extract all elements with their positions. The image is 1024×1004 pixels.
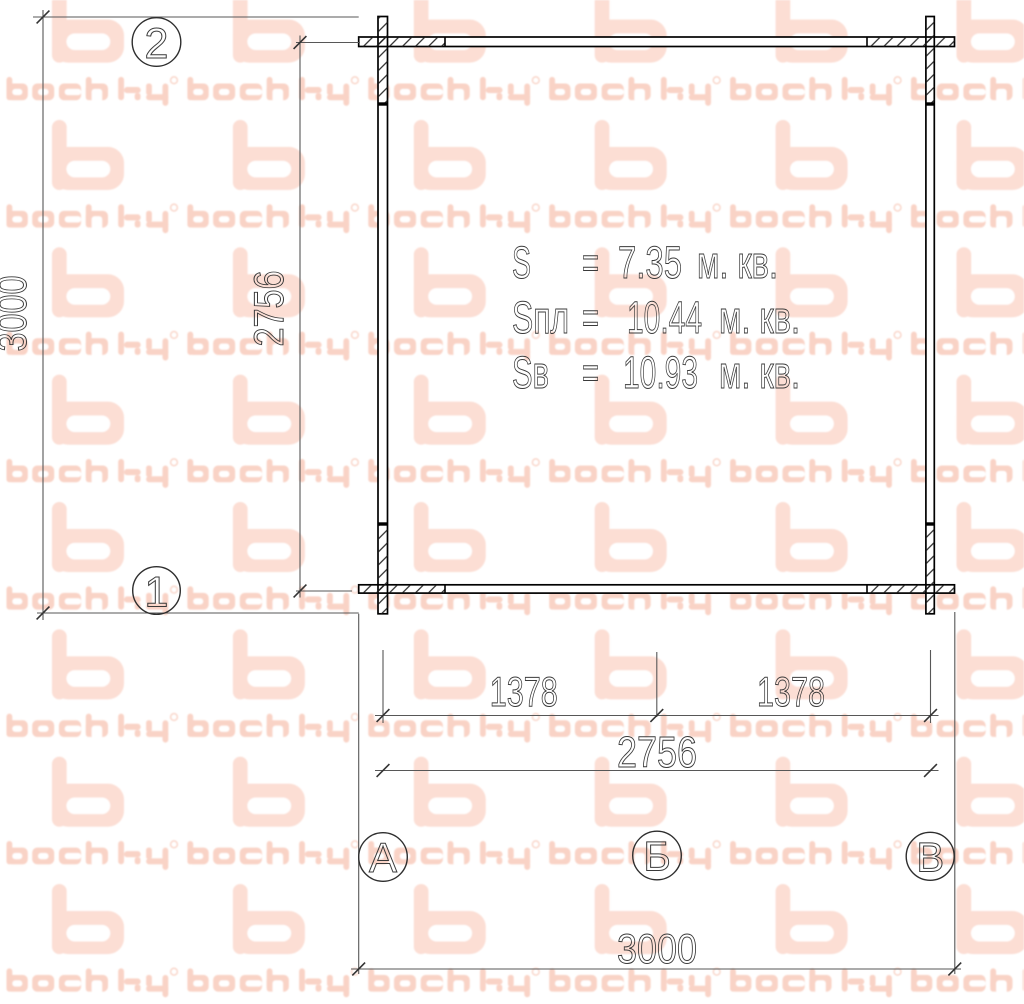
svg-text:3000: 3000	[617, 925, 697, 972]
svg-text:10.93: 10.93	[623, 347, 698, 398]
svg-text:10.44: 10.44	[627, 292, 702, 343]
svg-text:1378: 1378	[490, 668, 558, 715]
svg-text:м. кв.: м. кв.	[719, 347, 800, 398]
svg-text:м. кв.: м. кв.	[719, 292, 800, 343]
svg-text:7.35: 7.35	[618, 237, 682, 288]
svg-text:=: =	[582, 347, 599, 398]
svg-text:2756: 2756	[245, 271, 292, 347]
svg-text:3000: 3000	[0, 276, 35, 352]
svg-text:S: S	[512, 237, 531, 288]
svg-text:1378: 1378	[757, 668, 825, 715]
svg-text:м. кв.: м. кв.	[697, 237, 778, 288]
svg-text:2756: 2756	[617, 728, 697, 777]
svg-text:1: 1	[145, 569, 169, 617]
svg-text:2: 2	[145, 20, 169, 68]
svg-text:=: =	[582, 237, 599, 288]
svg-text:Sв: Sв	[512, 347, 549, 398]
svg-text:=: =	[582, 292, 599, 343]
svg-text:А: А	[369, 834, 397, 881]
svg-text:Б: Б	[643, 833, 671, 880]
svg-text:В: В	[916, 833, 944, 880]
svg-text:Sпл: Sпл	[512, 292, 569, 343]
